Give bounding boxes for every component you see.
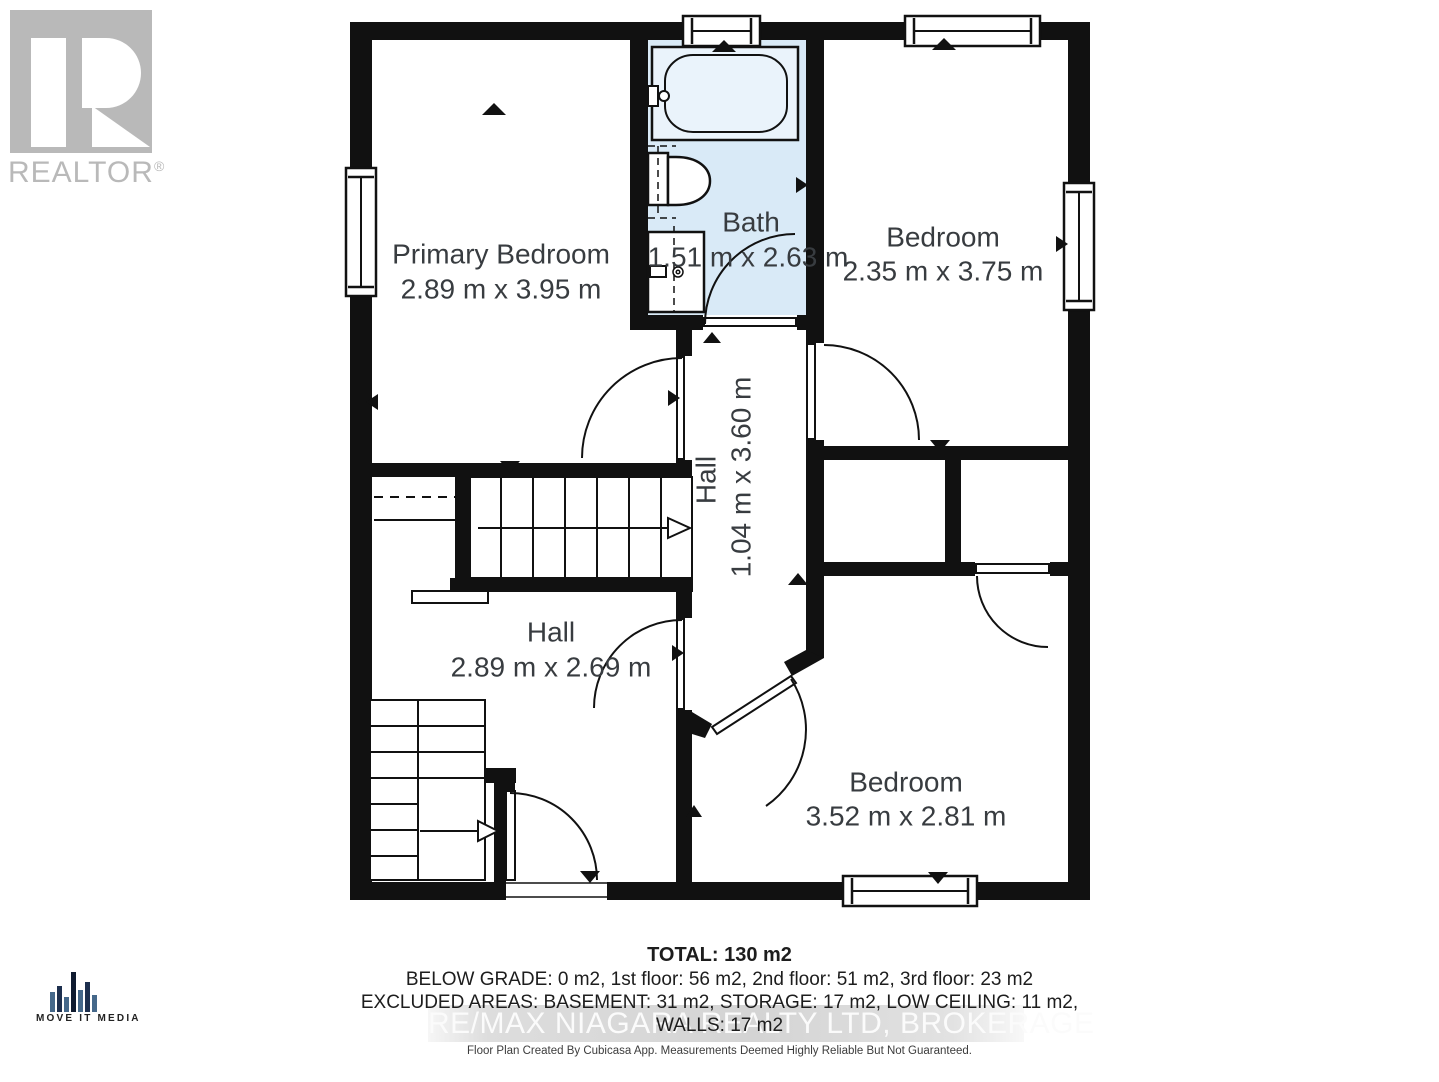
floor-areas-text: BELOW GRADE: 0 m2, 1st floor: 56 m2, 2nd… [0,969,1439,991]
room-dims-primary-bedroom: 2.89 m x 3.95 m [401,274,602,305]
room-label-bedroom-top-right: Bedroom [886,222,1000,253]
room-label-bath: Bath [722,207,780,238]
bathtub-icon [648,47,798,140]
room-dims-hall-corridor: 1.04 m x 3.60 m [726,377,757,578]
door-exterior-bottom [506,791,607,902]
excluded-areas-text: EXCLUDED AREAS: BASEMENT: 31 m2, STORAGE… [0,992,1439,1014]
total-area-text: TOTAL: 130 m2 [0,944,1439,967]
room-label-bedroom-bottom: Bedroom [849,767,963,798]
room-label-primary-bedroom: Primary Bedroom [392,239,610,270]
window-bath-top [683,16,760,46]
door-closet [975,562,1050,647]
room-label-hall-lower: Hall [527,617,575,648]
room-dims-hall-lower: 2.89 m x 2.69 m [451,652,652,683]
marker-triangle-up [788,573,808,585]
window-bedroom-bottom [843,876,977,906]
floor-plan: Primary Bedroom 2.89 m x 3.95 m Bath 1.5… [0,0,1439,1082]
disclaimer-text: Floor Plan Created By Cubicasa App. Meas… [0,1045,1439,1057]
door-bedroom-bottom [712,676,806,806]
stairs-lower [370,700,498,880]
room-dims-bath: 1.51 m x 2.63 m [648,242,849,273]
shelf-icon [412,591,488,603]
room-label-hall-corridor: Hall [691,456,722,504]
window-bedroom-top [905,16,1040,46]
walls-area-text: WALLS: 17 m2 [0,1015,1439,1037]
door-bedroom-top-right [806,343,919,440]
closet-under-stairs [374,497,455,520]
window-primary-left [346,168,376,296]
room-dims-bedroom-bottom: 3.52 m x 2.81 m [806,801,1007,832]
stairs-upper [470,477,692,578]
door-primary-bedroom [582,356,692,460]
window-bedroom-right [1064,183,1094,310]
room-dims-bedroom-top-right: 2.35 m x 3.75 m [843,256,1044,287]
marker-triangle-up [703,332,721,343]
marker-triangle-up [482,103,506,115]
